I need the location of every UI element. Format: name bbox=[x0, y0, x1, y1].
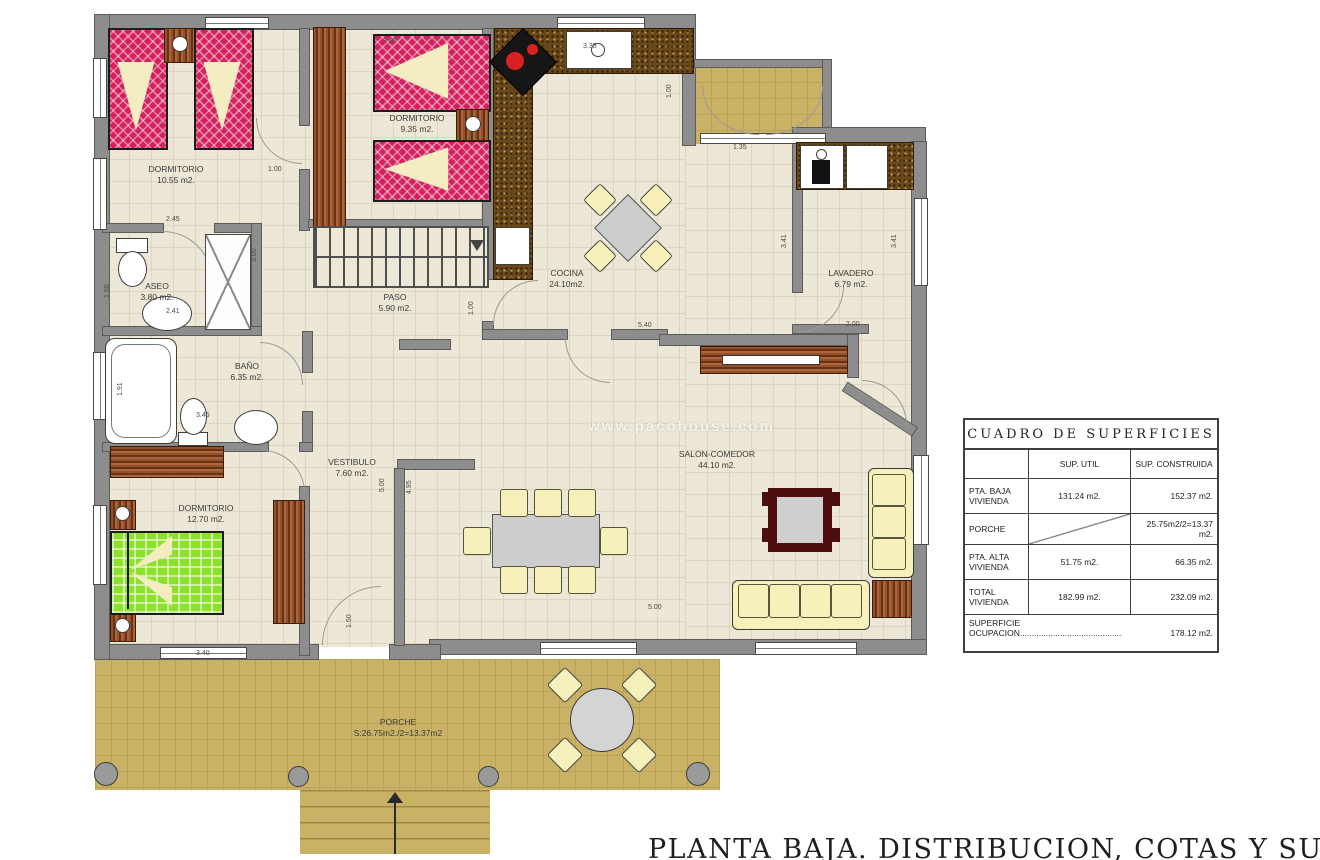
steps-direction-line bbox=[394, 798, 396, 854]
dimension-label: 1.50 bbox=[104, 284, 111, 298]
fireplace-corner bbox=[832, 492, 840, 506]
dimension-label: 1.00 bbox=[468, 301, 475, 315]
table-row-label: PTA. ALTA VIVIENDA bbox=[965, 545, 1029, 580]
wall bbox=[848, 335, 858, 377]
wall bbox=[612, 330, 667, 339]
stairs-arrow bbox=[470, 240, 484, 251]
dimension-label: 3.41 bbox=[781, 234, 788, 248]
table-row-label: TOTAL VIVIENDA bbox=[965, 580, 1029, 615]
table-cell-util-diagonal bbox=[1029, 514, 1131, 545]
dimension-label: 3.40 bbox=[196, 650, 210, 657]
table-cell-construida: 232.09 m2. bbox=[1131, 580, 1217, 615]
nightstand-lamp bbox=[465, 116, 481, 132]
laundry-sink-counter bbox=[846, 145, 888, 189]
dimension-label: 1.35 bbox=[733, 144, 747, 151]
room-label-cocina: COCINA24.10m2. bbox=[527, 268, 607, 290]
dimension-label: 5.00 bbox=[379, 478, 386, 492]
room-label-bano: BAÑO6.35 m2. bbox=[207, 361, 287, 383]
window bbox=[913, 455, 929, 545]
sofa-cushion bbox=[800, 584, 831, 618]
wall bbox=[398, 460, 474, 469]
stairs bbox=[313, 226, 489, 288]
dimension-label: 3.00 bbox=[383, 38, 397, 45]
chair bbox=[500, 566, 528, 594]
side-table bbox=[872, 580, 912, 618]
window bbox=[540, 642, 637, 655]
table-cell-util: 51.75 m2. bbox=[1029, 545, 1131, 580]
window bbox=[93, 505, 107, 585]
wall bbox=[695, 60, 831, 67]
room-label-vestibulo: VESTIBULO7.60 m2. bbox=[312, 457, 392, 479]
wall bbox=[300, 170, 309, 230]
wall bbox=[300, 29, 309, 125]
dimension-label: 2.45 bbox=[166, 216, 180, 223]
wall bbox=[395, 469, 404, 645]
floor-plan-page: DORMITORIO10.55 m2. DORMITORIO9.35 m2. C… bbox=[0, 0, 1320, 860]
dimension-label: 1.91 bbox=[117, 382, 124, 396]
room-label-salon-comedor: SALON-COMEDOR44.10 m2. bbox=[657, 449, 777, 471]
table-cell-util: 131.24 m2. bbox=[1029, 479, 1131, 514]
table-cell-util: 182.99 m2. bbox=[1029, 580, 1131, 615]
porch-column bbox=[288, 766, 309, 787]
table-row-label: PTA. BAJA VIVIENDA bbox=[965, 479, 1029, 514]
fireplace-corner bbox=[762, 528, 770, 542]
dimension-label: 4.95 bbox=[406, 480, 413, 494]
nightstand-lamp bbox=[115, 506, 130, 521]
window bbox=[914, 198, 928, 286]
chair bbox=[534, 489, 562, 517]
chair bbox=[568, 566, 596, 594]
table-footer-value: 178.12 m2. bbox=[1131, 615, 1217, 651]
shower bbox=[205, 234, 251, 330]
stove-burner bbox=[527, 44, 538, 55]
wall bbox=[103, 224, 163, 232]
table-cell-construida: 25.75m2/2=13.37 m2. bbox=[1131, 514, 1217, 545]
watermark: www.pacohouse.com bbox=[588, 418, 775, 435]
nightstand-lamp bbox=[115, 618, 130, 633]
dimension-label: 5.40 bbox=[638, 322, 652, 329]
table-header-sup-construida: SUP. CONSTRUIDA bbox=[1131, 450, 1217, 479]
plan-title: PLANTA BAJA. DISTRIBUCION, COTAS Y SUPER… bbox=[648, 834, 1320, 860]
steps-direction-arrow bbox=[387, 792, 403, 803]
wardrobe bbox=[313, 27, 346, 227]
sofa-cushion bbox=[831, 584, 862, 618]
bathtub bbox=[105, 338, 177, 444]
surfaces-table: CUADRO DE SUPERFICIES SUP. UTIL SUP. CON… bbox=[963, 418, 1219, 653]
wall bbox=[303, 412, 312, 445]
chair bbox=[568, 489, 596, 517]
room-label-aseo: ASEO3.80 m2. bbox=[117, 281, 197, 303]
room-label-paso: PASO5.90 m2. bbox=[355, 292, 435, 314]
room-label-porche: PORCHES:26.75m2./2=13.37m2 bbox=[328, 717, 468, 739]
porch-table bbox=[570, 688, 634, 752]
dimension-label: 3.41 bbox=[891, 234, 898, 248]
dining-table bbox=[492, 514, 600, 568]
washbasin bbox=[234, 410, 278, 445]
sofa-cushion bbox=[872, 506, 906, 538]
room-label-lavadero: LAVADERO6.79 m2. bbox=[811, 268, 891, 290]
sideboard-top bbox=[722, 355, 820, 365]
porch-column bbox=[686, 762, 710, 786]
wall bbox=[252, 224, 261, 332]
table-cell-construida: 66.35 m2. bbox=[1131, 545, 1217, 580]
table-row-label: PORCHE bbox=[965, 514, 1029, 545]
bed-headboard bbox=[127, 533, 129, 609]
window bbox=[93, 158, 107, 230]
dimension-label: 1.50 bbox=[346, 614, 353, 628]
wall bbox=[483, 330, 567, 339]
porch-column bbox=[478, 766, 499, 787]
wardrobe bbox=[110, 446, 224, 478]
chair bbox=[500, 489, 528, 517]
chair bbox=[534, 566, 562, 594]
washing-machine-knob bbox=[816, 149, 827, 160]
dimension-label: 5.00 bbox=[648, 604, 662, 611]
nightstand-lamp bbox=[172, 36, 188, 52]
window bbox=[755, 642, 857, 655]
sofa-cushion bbox=[872, 538, 906, 570]
surfaces-table-title: CUADRO DE SUPERFICIES bbox=[965, 420, 1217, 450]
window bbox=[93, 58, 107, 118]
sofa-cushion bbox=[738, 584, 769, 618]
porch-column bbox=[94, 762, 118, 786]
wall bbox=[303, 332, 312, 372]
room-label-dormitorio-2: DORMITORIO9.35 m2. bbox=[377, 113, 457, 135]
table-footer-label: SUPERFICIE OCUPACION....................… bbox=[965, 615, 1131, 651]
table-cell-construida: 152.37 m2. bbox=[1131, 479, 1217, 514]
dimension-label: 2.00 bbox=[846, 321, 860, 328]
room-label-dormitorio-3: DORMITORIO12.70 m2. bbox=[166, 503, 246, 525]
dishwasher bbox=[495, 227, 530, 265]
fireplace bbox=[768, 488, 832, 552]
wall bbox=[660, 335, 856, 345]
washing-machine-door bbox=[812, 160, 830, 184]
table-header-blank bbox=[965, 450, 1029, 479]
wall bbox=[400, 340, 450, 349]
wardrobe bbox=[273, 500, 305, 624]
chair bbox=[463, 527, 491, 555]
wall bbox=[823, 60, 831, 136]
fireplace-corner bbox=[762, 492, 770, 506]
dimension-label: 1.00 bbox=[268, 166, 282, 173]
dimension-label: 3.00 bbox=[251, 248, 258, 262]
dimension-label: 2.41 bbox=[166, 308, 180, 315]
wall bbox=[390, 645, 440, 659]
dimension-label: 3.45 bbox=[196, 412, 210, 419]
room-label-dormitorio-1: DORMITORIO10.55 m2. bbox=[136, 164, 216, 186]
dimension-label: 1.00 bbox=[666, 84, 673, 98]
wall bbox=[300, 443, 312, 451]
sofa-cushion bbox=[769, 584, 800, 618]
chair bbox=[600, 527, 628, 555]
sofa-cushion bbox=[872, 474, 906, 506]
stove-burner bbox=[506, 52, 524, 70]
dimension-label: 3.35 bbox=[583, 43, 597, 50]
table-header-sup-util: SUP. UTIL bbox=[1029, 450, 1131, 479]
fireplace-corner bbox=[832, 528, 840, 542]
